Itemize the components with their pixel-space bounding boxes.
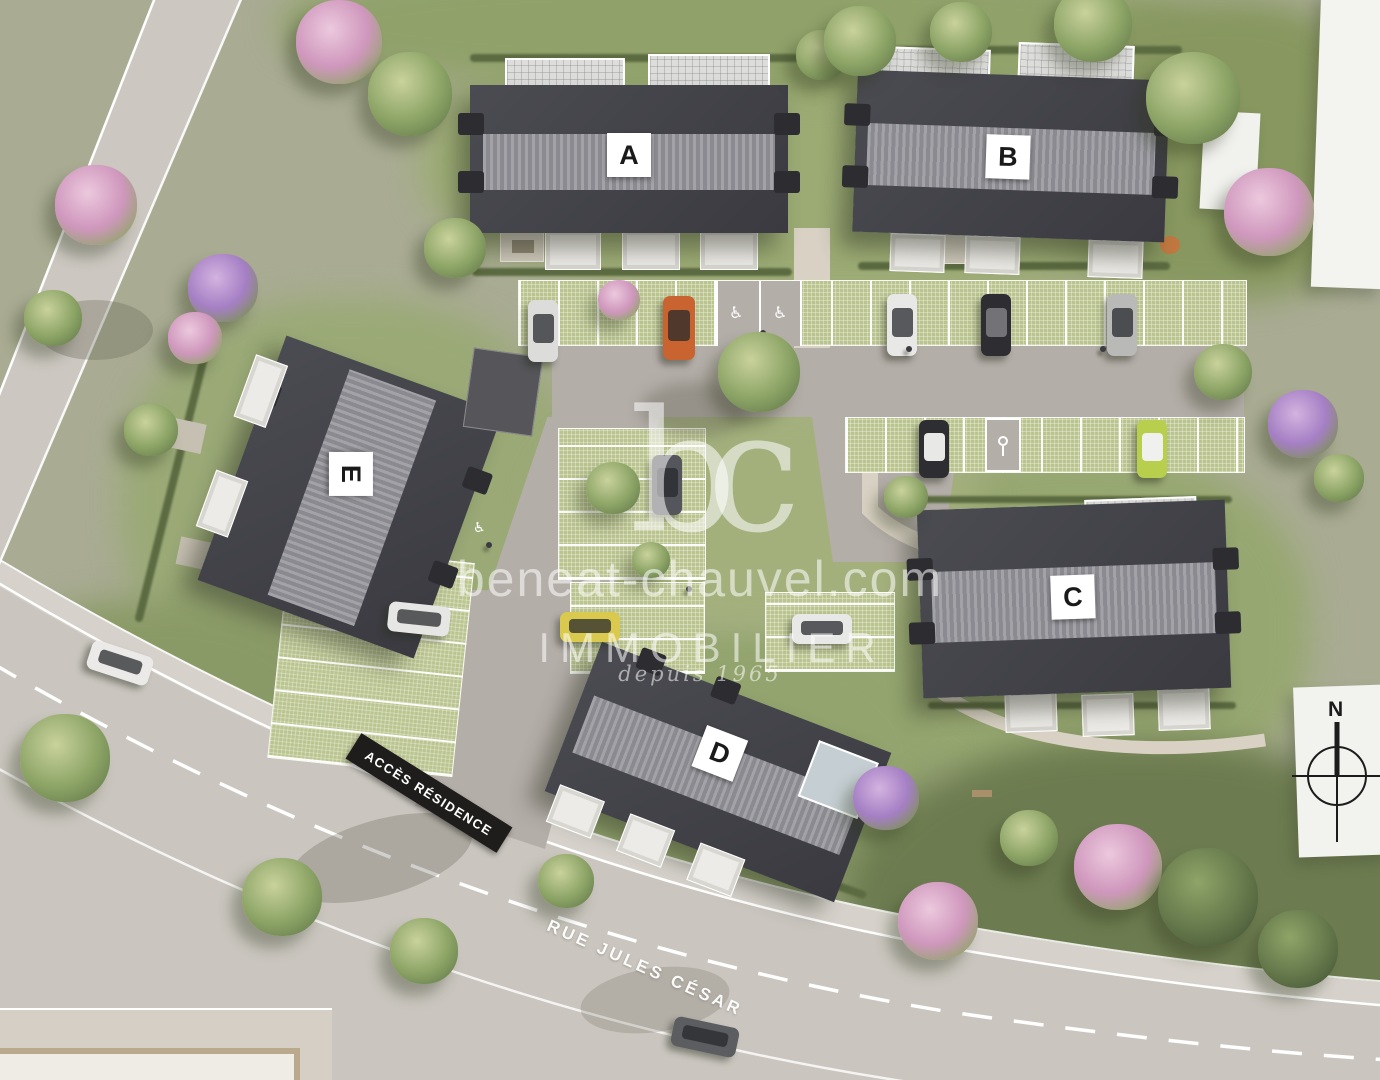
tree (586, 462, 640, 514)
tree (1194, 344, 1252, 400)
parked-car (663, 296, 695, 360)
tree (1146, 52, 1240, 144)
tree (1224, 168, 1314, 256)
tree (1158, 848, 1258, 946)
tree (898, 882, 978, 960)
tree (1268, 390, 1338, 458)
building-a: A (470, 85, 788, 233)
building-label-e: E (329, 452, 373, 496)
charging-station-icon (1002, 446, 1004, 456)
parked-car (652, 455, 682, 515)
wheelchair-icon: ♿ (473, 520, 486, 536)
person (486, 542, 492, 548)
balcony (889, 233, 945, 273)
person (1100, 346, 1106, 352)
garden-furniture (512, 240, 534, 253)
building-label-c: C (1050, 574, 1096, 620)
dormer (774, 171, 800, 193)
balcony (1157, 687, 1210, 731)
tree (242, 858, 322, 936)
building-b: B (852, 70, 1169, 243)
parked-car (528, 300, 558, 362)
tree (24, 290, 82, 346)
tree (296, 0, 382, 84)
dormer (774, 113, 800, 135)
balcony (700, 230, 758, 270)
parked-car (560, 612, 620, 642)
tree (930, 2, 992, 62)
wheelchair-icon: ♿ (729, 303, 743, 322)
tree (1314, 454, 1364, 502)
ev-parking (985, 418, 1021, 472)
balcony (1087, 239, 1143, 279)
tree (1000, 810, 1058, 866)
parked-car (1137, 420, 1167, 478)
dormer (1215, 611, 1242, 634)
tree (168, 312, 222, 364)
balcony (622, 230, 680, 270)
tree (853, 766, 919, 830)
building-label-b: B (985, 134, 1031, 180)
compass: N (1290, 698, 1380, 848)
tree (1074, 824, 1162, 910)
balcony (1004, 689, 1057, 733)
wheelchair-icon: ♿ (773, 303, 787, 322)
tree (55, 165, 137, 245)
tree (718, 332, 800, 412)
building-c: C (917, 500, 1231, 699)
parking-row (845, 417, 1245, 473)
neighbor-building (1311, 0, 1380, 289)
tree (424, 218, 486, 278)
dormer (1212, 547, 1239, 570)
person (686, 586, 692, 592)
parked-car (792, 614, 852, 644)
tree (538, 854, 594, 908)
parked-car (1107, 294, 1137, 356)
dormer (458, 171, 484, 193)
dormer (844, 103, 871, 126)
parked-car (887, 294, 917, 356)
compass-rose-icon (1290, 720, 1380, 848)
building-label-a: A (607, 133, 651, 177)
tree (20, 714, 110, 802)
compass-north-label: N (1328, 698, 1343, 722)
balcony (964, 235, 1020, 275)
dormer (909, 622, 936, 645)
dormer (458, 113, 484, 135)
roof-ridge (268, 370, 436, 626)
garden-furniture (972, 790, 992, 797)
parked-car (387, 601, 452, 637)
balcony (545, 230, 601, 270)
tree (884, 476, 928, 518)
parked-car (919, 420, 949, 478)
tree (824, 6, 896, 76)
tree (390, 918, 458, 984)
parked-car (981, 294, 1011, 356)
dormer (842, 165, 869, 188)
tree (124, 404, 178, 456)
aerial-site-plan: ♿ ♿ ♿ A (0, 0, 1380, 1080)
tree (368, 52, 452, 136)
person (906, 346, 912, 352)
dormer (1152, 176, 1179, 199)
tree (1258, 910, 1338, 988)
tree (632, 542, 670, 578)
charging-station-icon (998, 436, 1008, 446)
dormer (906, 558, 933, 581)
tree (598, 280, 640, 320)
balcony (1081, 693, 1134, 737)
